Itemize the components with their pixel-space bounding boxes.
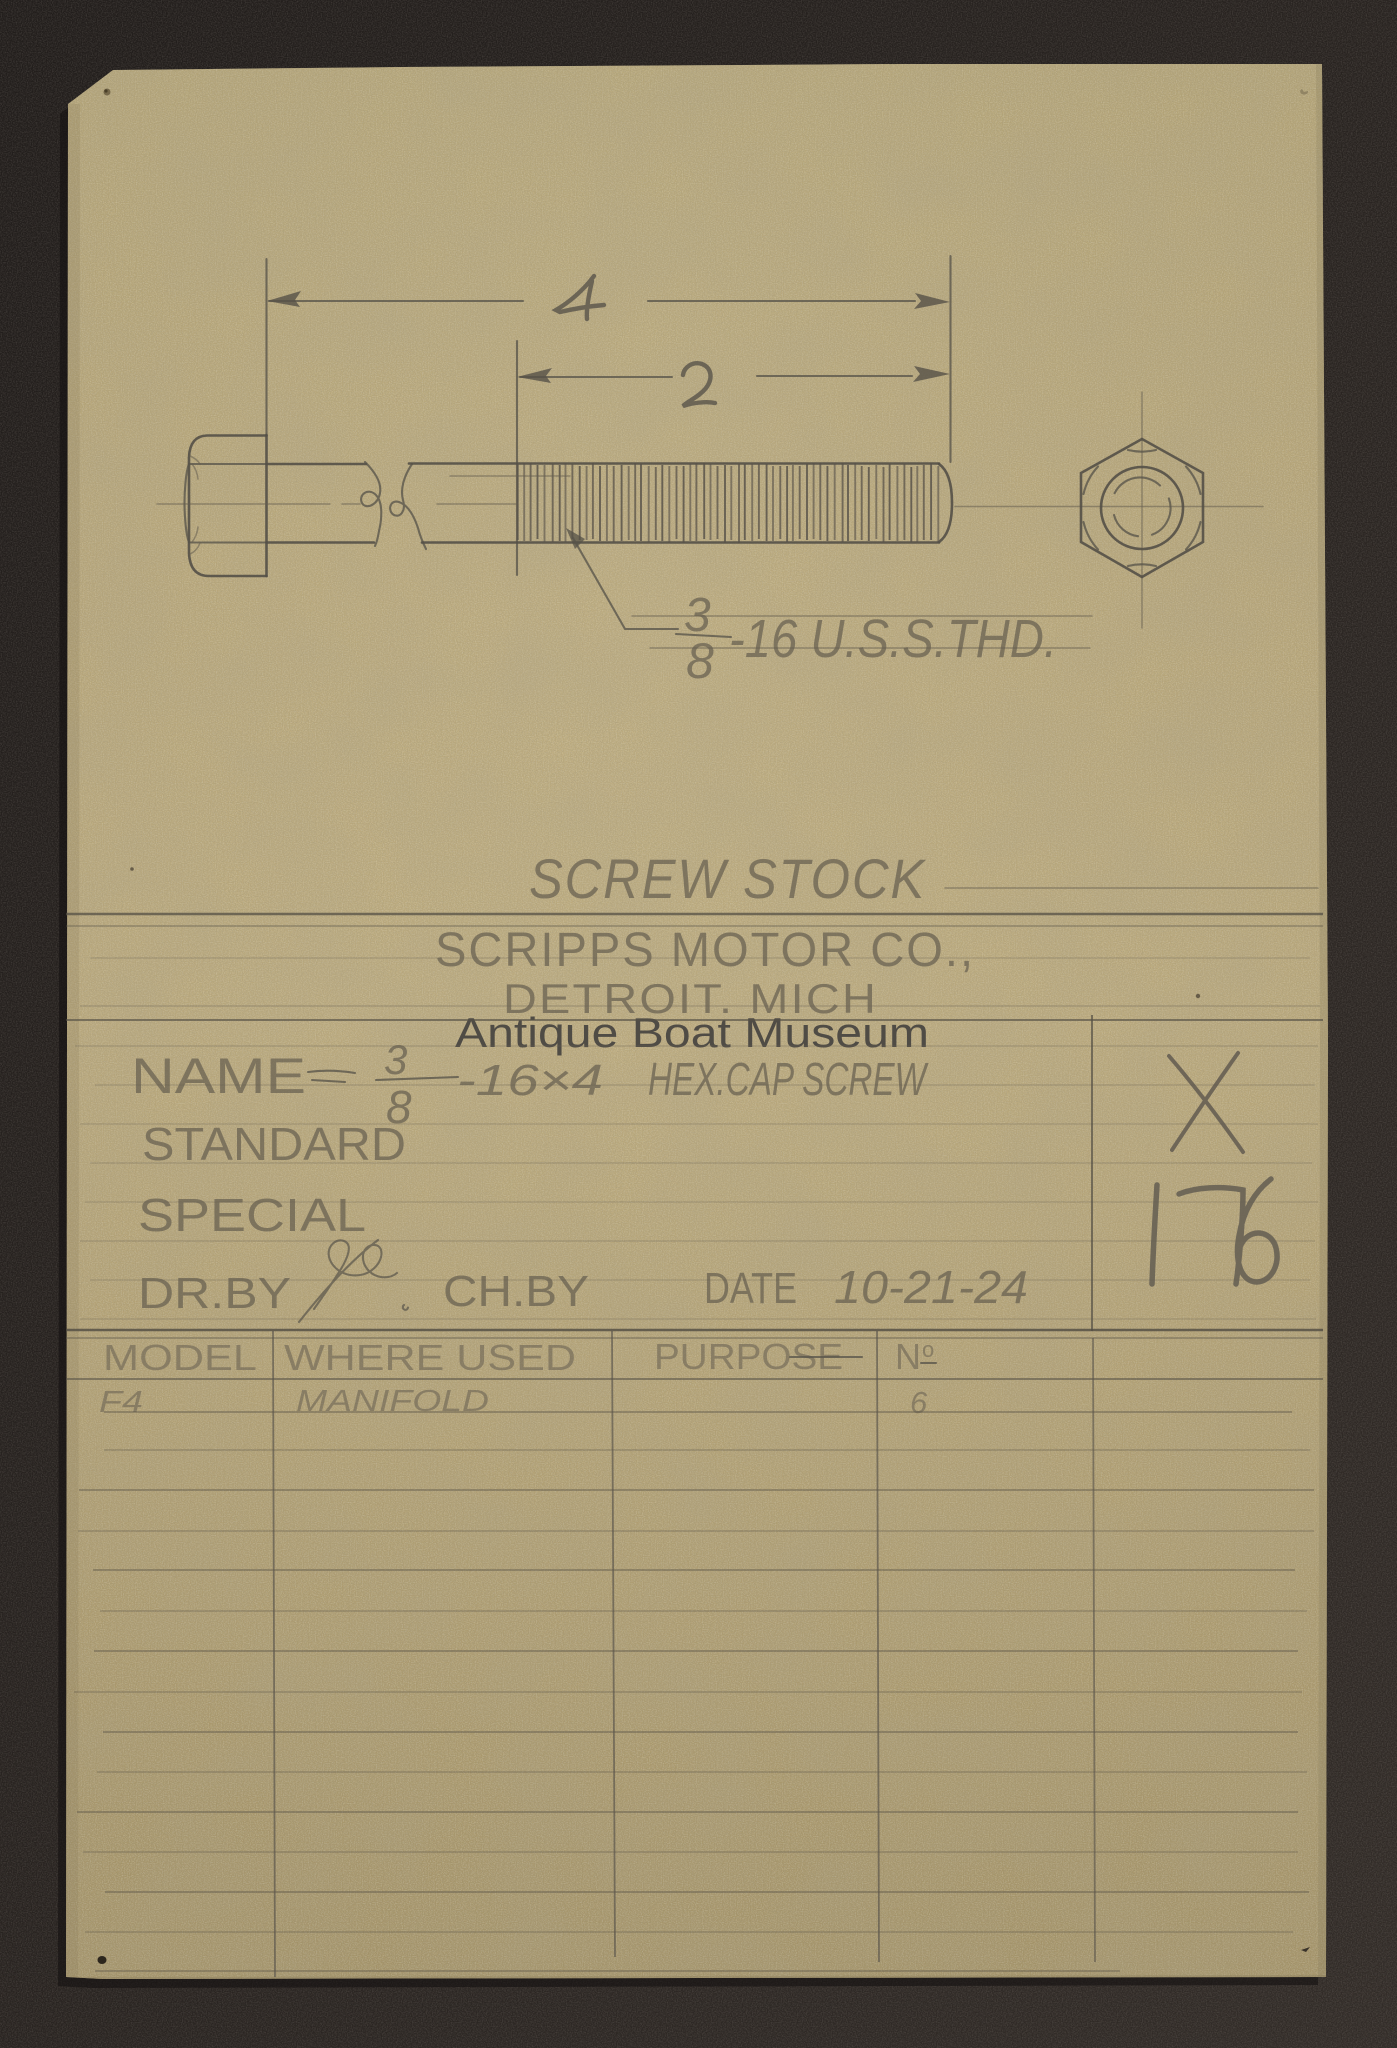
svg-text:NAME: NAME	[131, 1048, 306, 1104]
svg-text:MODEL: MODEL	[103, 1337, 257, 1378]
svg-text:Antique Boat Museum: Antique Boat Museum	[455, 1009, 929, 1056]
svg-text:6: 6	[910, 1385, 928, 1420]
svg-text:-16 U.S.S.THD.: -16 U.S.S.THD.	[729, 609, 1057, 669]
svg-text:CH.BY: CH.BY	[443, 1267, 589, 1316]
svg-text:SCREW STOCK: SCREW STOCK	[529, 847, 927, 910]
svg-text:8: 8	[686, 633, 714, 689]
svg-text:10-21-24: 10-21-24	[834, 1261, 1028, 1313]
svg-text:o: o	[922, 1337, 934, 1362]
svg-text:3: 3	[384, 1036, 407, 1083]
svg-text:DR.BY: DR.BY	[138, 1269, 291, 1318]
svg-text:STANDARD: STANDARD	[142, 1118, 406, 1170]
svg-text:SCRIPPS MOTOR CO.,: SCRIPPS MOTOR CO.,	[435, 924, 975, 977]
svg-text:F4: F4	[99, 1384, 143, 1419]
svg-text:N: N	[895, 1336, 921, 1377]
svg-text:DATE: DATE	[704, 1264, 797, 1313]
svg-text:SPECIAL: SPECIAL	[138, 1189, 366, 1241]
svg-text:-16×4: -16×4	[457, 1056, 603, 1105]
svg-text:HEX.CAP SCREW: HEX.CAP SCREW	[648, 1053, 929, 1105]
svg-text:WHERE USED: WHERE USED	[284, 1337, 576, 1378]
